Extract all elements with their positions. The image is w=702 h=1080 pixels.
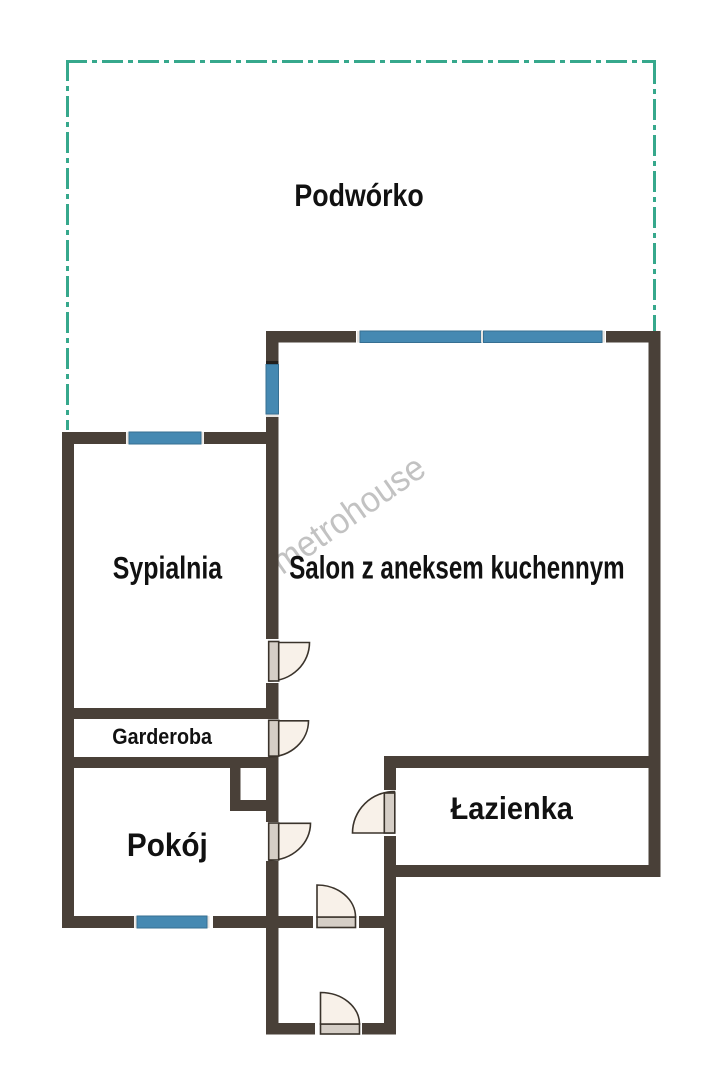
svg-text:Salon z aneksem kuchennym: Salon z aneksem kuchennym: [289, 550, 624, 586]
svg-text:Łazienka: Łazienka: [451, 790, 574, 826]
svg-text:Podwórko: Podwórko: [294, 177, 423, 213]
svg-text:Pokój: Pokój: [127, 827, 208, 863]
svg-text:Sypialnia: Sypialnia: [113, 550, 223, 586]
svg-text:Garderoba: Garderoba: [112, 724, 212, 749]
